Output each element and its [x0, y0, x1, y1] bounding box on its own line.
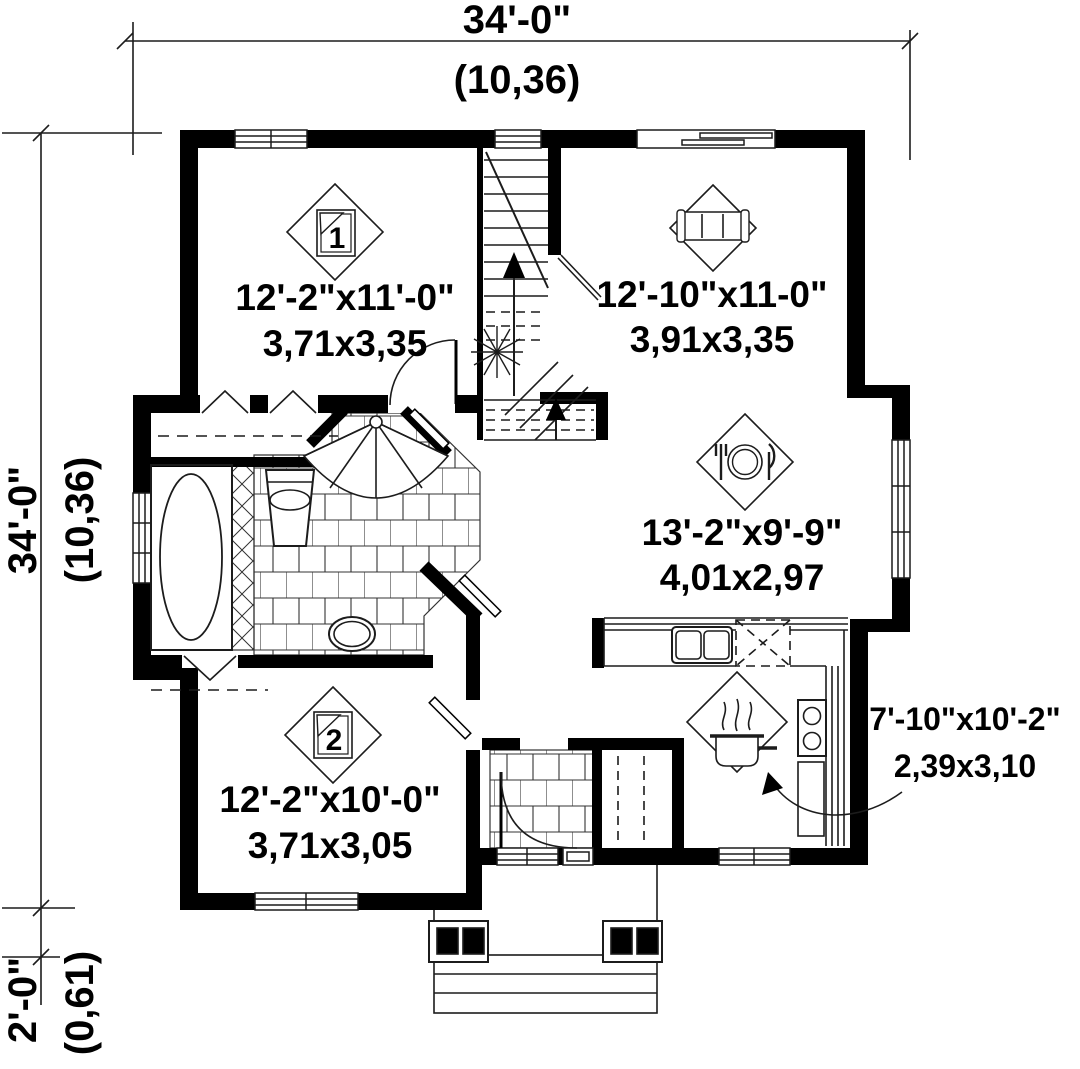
porch-pillar-left: [429, 921, 488, 962]
bedroom-1-number: 1: [329, 222, 346, 255]
left-dim-metric: (10,36): [58, 457, 102, 584]
top-dim-metric: (10,36): [454, 58, 581, 102]
closet-left-wall: [592, 742, 602, 848]
kitchen-window: [719, 848, 790, 865]
dining-room-imperial: 13'-2"x9'-9": [642, 512, 843, 553]
bedroom-2-number: 2: [326, 724, 343, 757]
toilet: [329, 617, 375, 651]
bedroom2-window: [255, 893, 358, 910]
kitchen-sink: [672, 627, 732, 663]
living-room-imperial: 12'-10"x11-0": [596, 274, 827, 315]
porch-pillar-right: [603, 921, 662, 962]
bedroom-1-imperial: 12'-2"x11'-0": [235, 277, 454, 318]
porch-dim-metric: (0,61): [58, 951, 102, 1056]
bedroom-1-metric: 3,71x3,35: [263, 323, 428, 364]
stove: [798, 700, 826, 756]
living-room-window: [637, 130, 775, 148]
bedroom-2-metric: 3,71x3,05: [248, 825, 413, 866]
bathroom-bedroom2-wall: [133, 655, 433, 668]
floor-plan-drawing: 34'-0" (10,36) 34'-0" (10,36) 2'-0" (0,6…: [0, 0, 1080, 1069]
bedroom1-window: [235, 130, 307, 148]
living-room-metric: 3,91x3,35: [630, 319, 795, 360]
floor-plan-page: 34'-0" (10,36) 34'-0" (10,36) 2'-0" (0,6…: [0, 0, 1080, 1069]
bedroom2-entry-wall: [466, 612, 480, 893]
basement-stair-wall: [596, 398, 608, 440]
kitchen-wall-stub: [592, 618, 604, 668]
left-dim-imperial: 34'-0": [1, 466, 45, 575]
stair-window: [495, 130, 541, 148]
stair-right-wall: [548, 130, 561, 255]
bathroom-window: [133, 493, 151, 583]
bedroom-2-imperial: 12'-2"x10'-0": [219, 779, 440, 820]
kitchen-metric: 2,39x3,10: [894, 748, 1036, 784]
dining-room-metric: 4,01x2,97: [660, 557, 825, 598]
porch-dim-imperial: 2'-0": [1, 957, 45, 1043]
top-dim-imperial: 34'-0": [463, 0, 572, 42]
entry-tile-floor: [490, 750, 600, 848]
entry-window: [497, 848, 558, 865]
closet-right-wall: [672, 738, 684, 848]
dining-room-window: [892, 440, 910, 578]
kitchen-cabinet: [798, 762, 824, 836]
stair-left-wall: [477, 148, 483, 440]
bathroom-counter-hatch: [232, 465, 254, 650]
front-door-sill: [563, 848, 593, 865]
vanity-sink: [266, 470, 314, 546]
kitchen-imperial: 7'-10"x10'-2": [869, 701, 1060, 737]
